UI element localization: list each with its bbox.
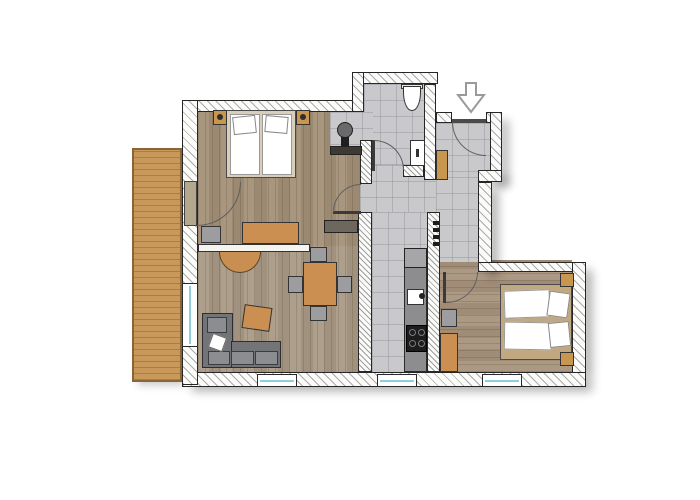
bed2-pillow-lower (548, 321, 571, 348)
wall-bedroom2-east (572, 262, 586, 374)
dining-chair-north (310, 247, 327, 262)
dining-chair-south (310, 306, 327, 321)
floor-plan (0, 0, 700, 500)
window-kitchen-south (377, 374, 417, 387)
entry-hall-floor (436, 177, 478, 262)
dining-chair-east (337, 276, 352, 293)
entry-arrow-icon (456, 82, 486, 114)
wardrobe-bedroom2 (440, 333, 458, 372)
bed2-pillow-upper (546, 291, 570, 319)
bed1-pillow-right (264, 115, 288, 134)
nightstand1-left-lamp (217, 114, 223, 120)
kitchen-fridge (404, 248, 427, 268)
wall-wc-south (403, 165, 424, 177)
wall-east-mid (478, 182, 492, 272)
sideboard (324, 220, 358, 233)
terrace-deck (132, 148, 182, 382)
washbasin-counter (330, 146, 362, 155)
desk-chair (201, 226, 221, 243)
kitchen-faucet (419, 293, 425, 299)
desk (242, 222, 299, 244)
coat-hook-1 (433, 221, 439, 225)
nightstand2-top (560, 273, 574, 287)
wall-east-step (478, 170, 502, 182)
window-living-south (257, 374, 297, 387)
coat-hook-3 (433, 235, 439, 239)
stove-burner-2 (418, 329, 425, 336)
sofa-cushion-3 (255, 351, 278, 365)
dining-table (303, 262, 337, 306)
wall-living-east (358, 212, 372, 372)
nightstand2-bottom (560, 352, 574, 366)
sofa-cushion-1 (208, 351, 230, 365)
washbasin-pedestal (341, 137, 349, 146)
partition-bedroom1-living (198, 244, 310, 252)
stove-burner-4 (418, 340, 425, 347)
sofa-cushion-arm (207, 317, 227, 333)
ottoman (241, 304, 272, 332)
wall-wc-west-step (352, 72, 364, 112)
window-bedroom2-south (482, 374, 522, 387)
entry-cabinet (436, 150, 448, 180)
bed2-mattress-lower (504, 322, 552, 351)
wall-bedroom2-north (478, 262, 586, 272)
bed2-mattress-upper (504, 289, 551, 319)
coat-hook-4 (433, 242, 439, 246)
chair-bedroom2 (441, 309, 457, 327)
coat-hook-2 (433, 228, 439, 232)
sofa-cushion-2 (231, 351, 254, 365)
stove-burner-3 (409, 340, 416, 347)
nightstand1-right-lamp (300, 114, 306, 120)
wall-entry-north-left (436, 112, 452, 123)
terrace-door-leaf (184, 181, 197, 226)
dining-chair-west (288, 276, 303, 293)
washbasin-bowl-icon (337, 122, 353, 138)
window-living-west (182, 283, 198, 347)
wall-wc-top (352, 72, 438, 84)
wall-wc-east (424, 84, 436, 180)
stove-burner-1 (409, 329, 416, 336)
bed1-pillow-left (232, 115, 257, 135)
wc-sink-tap (416, 149, 419, 157)
